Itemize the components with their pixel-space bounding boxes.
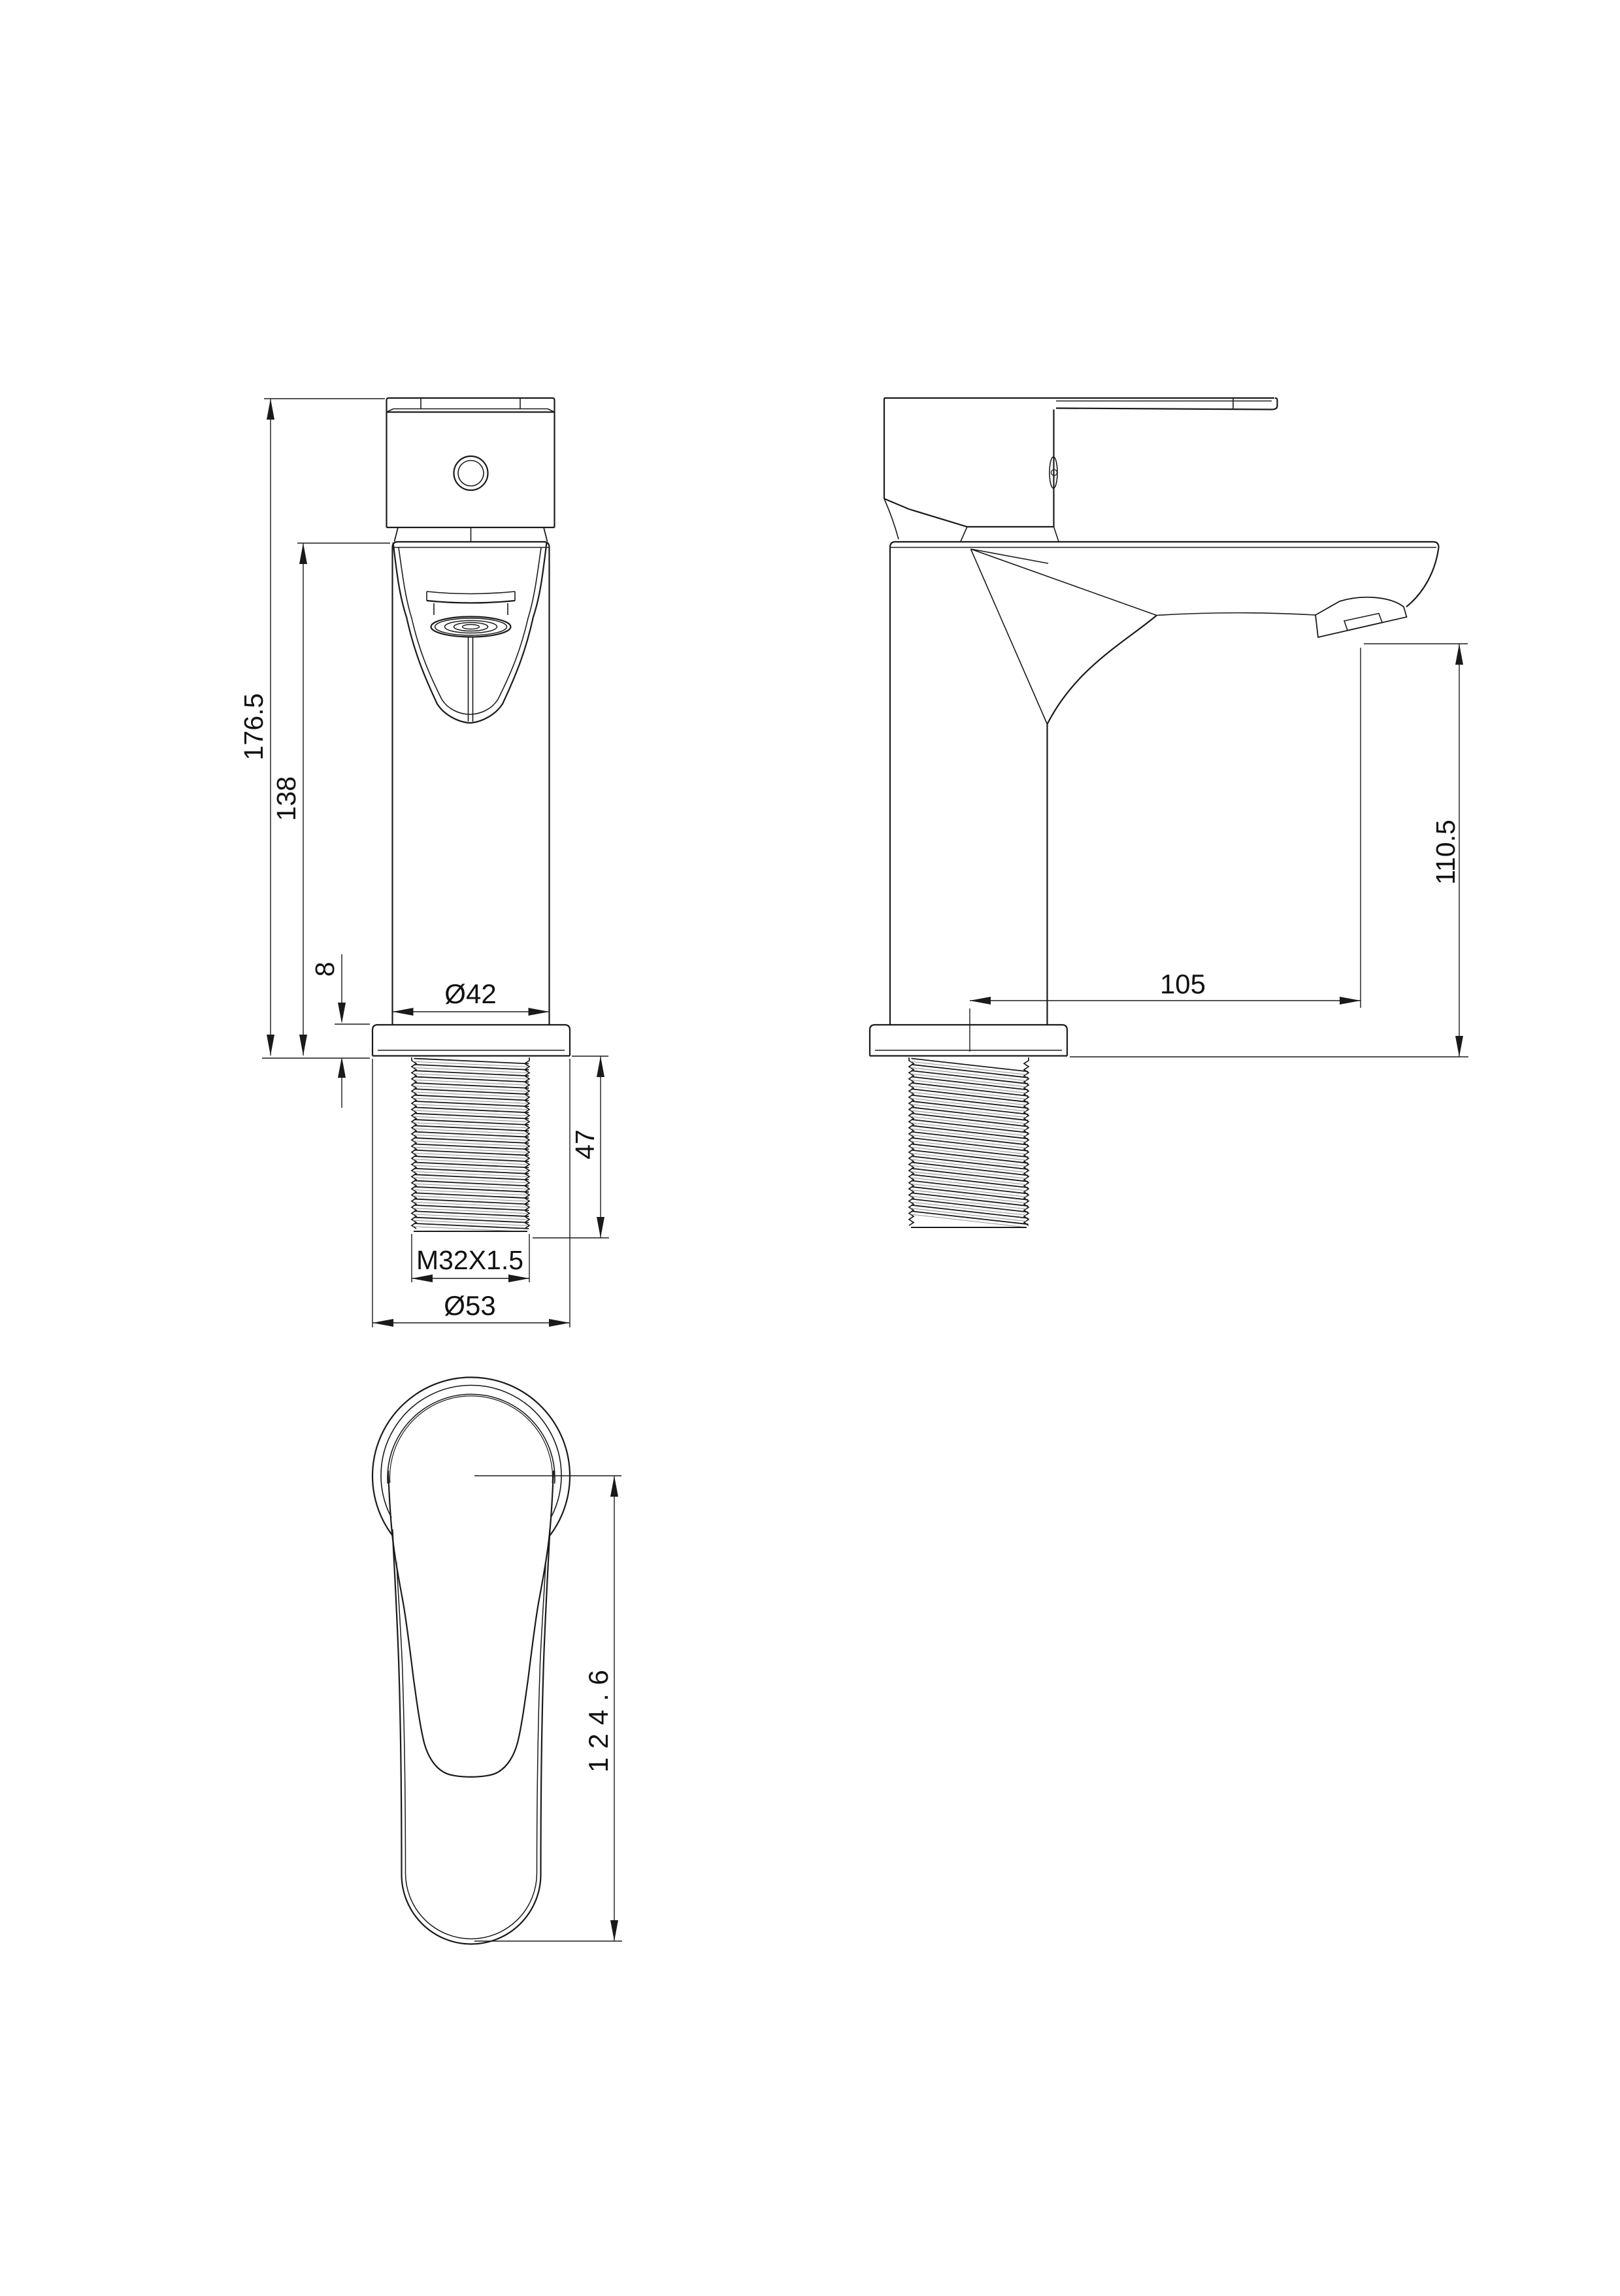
- svg-text:M32X1.5: M32X1.5: [416, 1245, 523, 1275]
- svg-text:176.5: 176.5: [239, 693, 269, 761]
- svg-text:Ø42: Ø42: [444, 978, 496, 1009]
- svg-text:138: 138: [271, 776, 301, 821]
- svg-text:105: 105: [1160, 969, 1206, 999]
- svg-text:8: 8: [310, 962, 340, 977]
- svg-text:Ø53: Ø53: [444, 1290, 495, 1321]
- svg-text:47: 47: [570, 1129, 600, 1159]
- svg-text:124.6: 124.6: [583, 1661, 614, 1772]
- svg-text:110.5: 110.5: [1430, 820, 1461, 885]
